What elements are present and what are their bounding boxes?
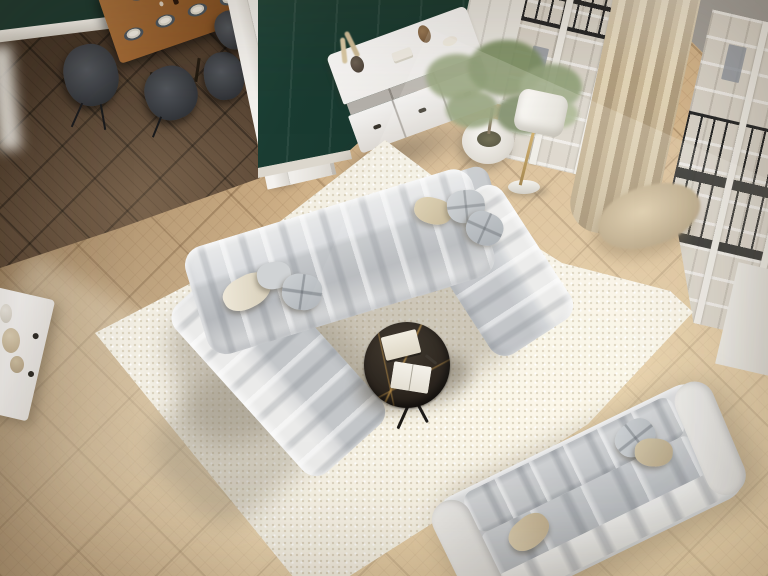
wine-glass [159, 1, 164, 7]
facade-window [721, 44, 747, 83]
wine-bottle [171, 0, 180, 5]
beige-vase [2, 328, 20, 353]
white-vase [0, 304, 12, 323]
living-room-scene [0, 0, 768, 576]
drawer-knob [27, 370, 34, 377]
drawer-knob [32, 332, 39, 339]
beige-vase [10, 356, 24, 373]
placemat [128, 0, 151, 3]
